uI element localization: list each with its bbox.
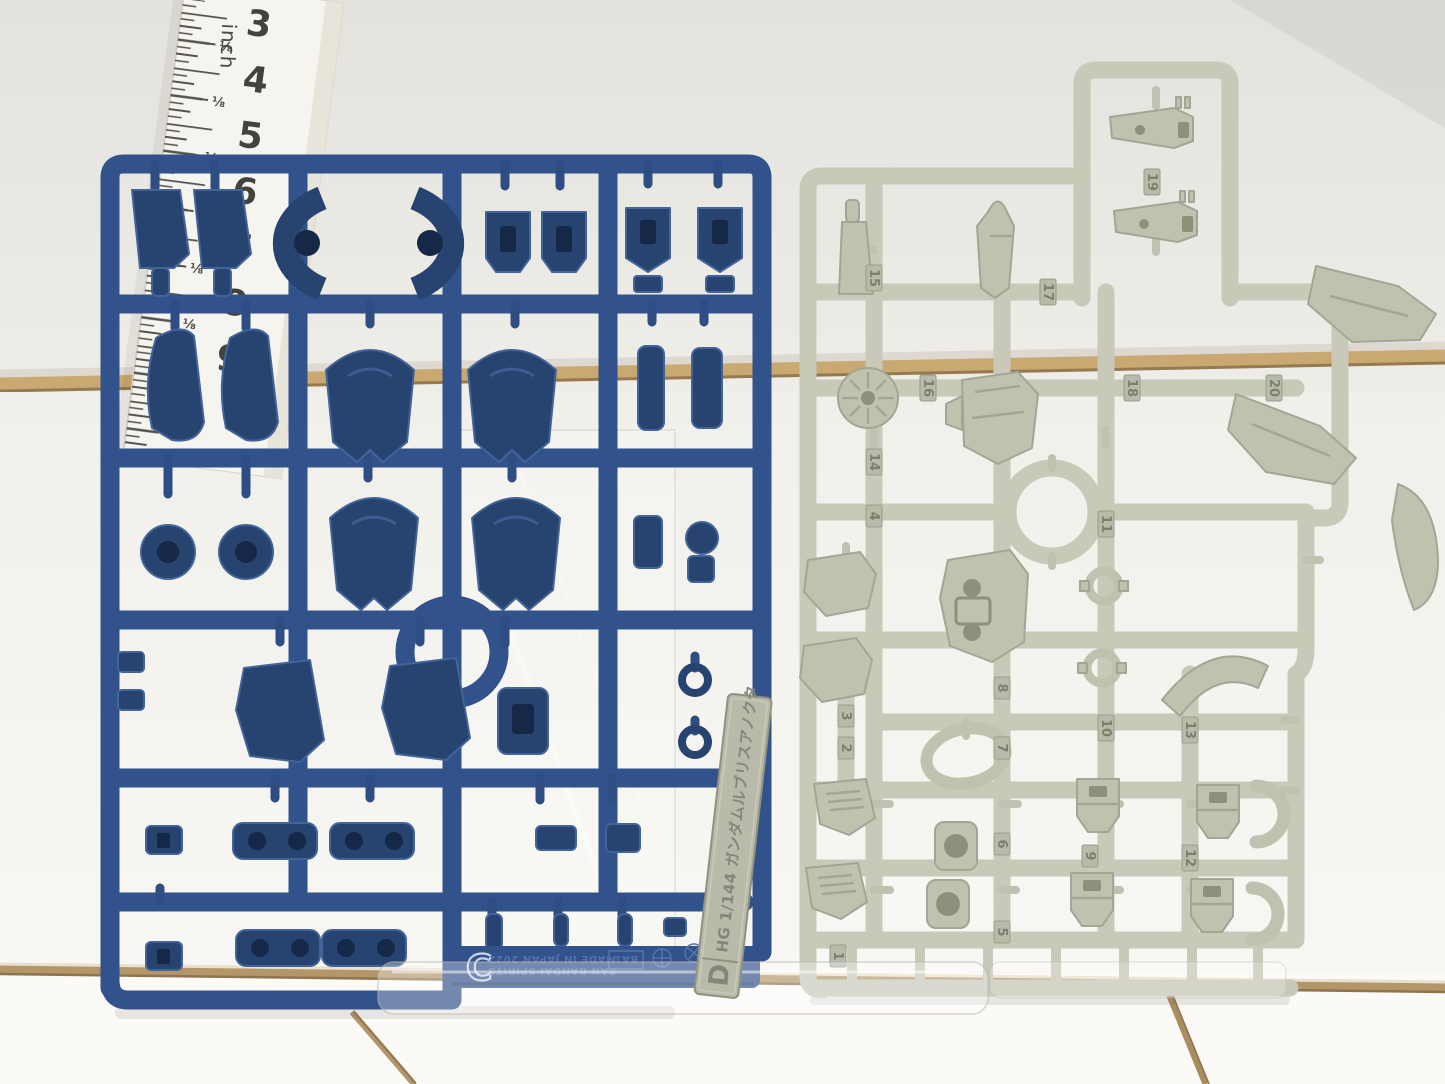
part-number-6: 6 [994, 839, 1009, 848]
part-number-2: 2 [838, 743, 853, 752]
runner-letter-d: D [703, 962, 736, 988]
part-number-10: 10 [1098, 719, 1113, 737]
blue-part-side-skirt [148, 329, 204, 440]
part-number-15: 15 [866, 269, 881, 287]
part-number-14: 14 [866, 453, 881, 471]
gray-part-head [1191, 879, 1233, 932]
gray-part-fan-wheel [838, 368, 898, 428]
part-number-17: 17 [1040, 283, 1055, 301]
gray-part-head [1071, 873, 1113, 926]
blue-part-cowl [468, 350, 556, 462]
gray-part-head [1197, 785, 1239, 838]
blue-part-armor-plate [382, 658, 470, 760]
blue-part-small [536, 826, 576, 850]
blue-part-dome [141, 525, 195, 579]
part-number-8: 8 [994, 683, 1009, 692]
ruler-number-5: 5 [235, 114, 265, 158]
gray-part-head [1077, 779, 1119, 832]
part-number-4: 4 [866, 511, 881, 520]
ruler-fraction-label: ⅛ [218, 39, 233, 56]
part-number-11: 11 [1098, 515, 1113, 533]
ruler-number-4: 4 [240, 59, 270, 103]
part-number-13: 13 [1182, 721, 1197, 739]
part-number-16: 16 [920, 379, 935, 397]
part-number-3: 3 [838, 711, 853, 720]
blue-part-small [606, 824, 640, 852]
gray-part-hole-box [935, 822, 977, 870]
blue-part-cowl [330, 498, 418, 610]
gray-part-chest [940, 550, 1028, 662]
part-number-19: 19 [1144, 173, 1159, 191]
part-number-7: 7 [994, 743, 1009, 752]
blue-part-side-skirt [222, 329, 278, 440]
blue-part-slim [692, 348, 722, 428]
blue-part-cowl [472, 498, 560, 610]
part-number-18: 18 [1124, 379, 1139, 397]
blue-part-connector [322, 930, 406, 966]
part-number-12: 12 [1182, 849, 1197, 867]
part-number-5: 5 [994, 927, 1009, 936]
photo-of-gunpla-runners: inch 3 4 5 6 7 8 9 ⅛ ⅛ ⅛ ⅛ ⅛ ⅛ [0, 0, 1445, 1084]
blue-part-connector [330, 823, 414, 859]
blue-part-clip [146, 942, 182, 970]
blue-part-connector [236, 930, 320, 966]
part-number-1: 1 [830, 951, 845, 960]
blue-part-cowl [326, 350, 414, 462]
gray-part-hole-box [927, 880, 969, 928]
part-number-9: 9 [1082, 851, 1097, 860]
blue-part-dome [219, 525, 273, 579]
ruler-fraction-label: ⅛ [211, 95, 226, 112]
blue-part-connector [233, 823, 317, 859]
ruler-number-3: 3 [244, 3, 274, 47]
blue-part-clip [146, 826, 182, 854]
part-number-20: 20 [1266, 379, 1281, 397]
blue-part-small-round [686, 522, 718, 554]
blue-part-slim [638, 346, 664, 430]
blue-part-small-block [634, 516, 662, 568]
blue-part-armor-plate [236, 660, 324, 762]
